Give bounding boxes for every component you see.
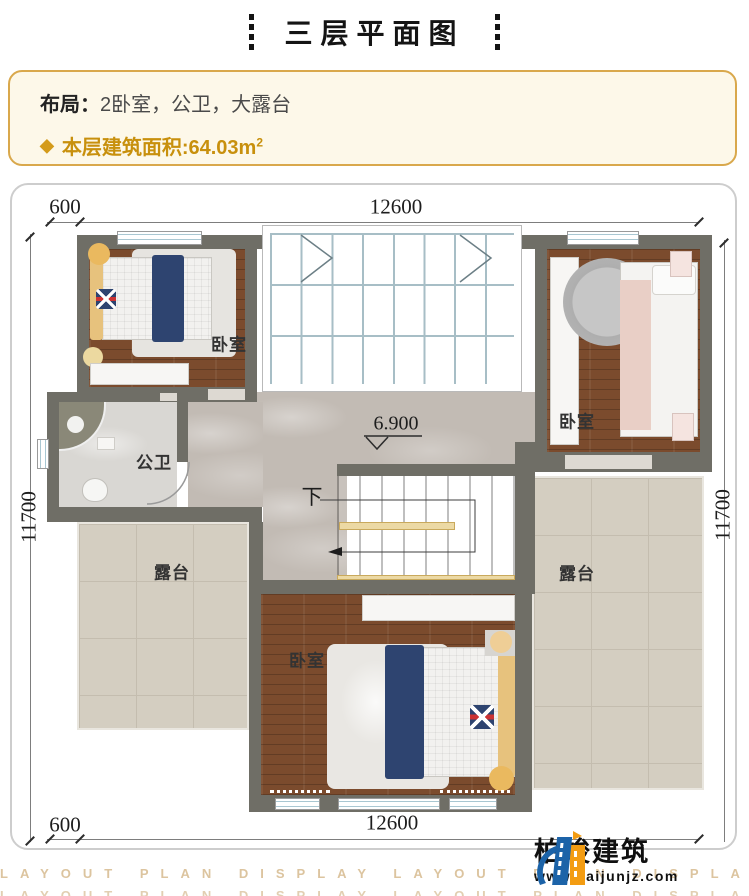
wall xyxy=(77,235,89,402)
bed-headboard xyxy=(498,647,515,777)
info-box: 布局：2卧室，公卫，大露台 ◆ 本层建筑面积:64.03m2 xyxy=(8,70,737,166)
round-stool xyxy=(88,243,110,265)
stair-edge xyxy=(337,575,515,580)
curtain xyxy=(270,790,330,793)
doorway xyxy=(208,389,245,400)
wardrobe xyxy=(362,595,515,621)
diamond-icon: ◆ xyxy=(40,135,54,156)
window xyxy=(567,231,639,245)
title-row: 三层平面图 xyxy=(0,12,749,52)
wall xyxy=(515,594,532,812)
sink xyxy=(67,416,84,433)
union-jack-pillow xyxy=(96,289,116,309)
skylight xyxy=(262,225,522,392)
skylight-open-arrows xyxy=(270,233,516,386)
window xyxy=(117,231,202,245)
dim-right: 11700 xyxy=(711,489,736,541)
union-jack-pillow xyxy=(470,705,494,729)
bed-runner xyxy=(385,645,424,779)
room-label-bedroom-bottom: 卧室 xyxy=(289,647,325,672)
logo-building-icon xyxy=(534,829,592,893)
curtain xyxy=(440,790,510,793)
wall xyxy=(249,594,261,812)
dim-line-right xyxy=(724,240,725,842)
elevation-label: 6.900 xyxy=(374,413,419,436)
room-label-bedroom-top-right: 卧室 xyxy=(559,408,595,433)
elevation-marker xyxy=(362,435,442,451)
dim-line-top xyxy=(47,222,699,223)
floor-plan: 600 12600 11700 11700 600 12600 xyxy=(10,183,737,850)
toilet xyxy=(82,478,108,502)
dim-left: 11700 xyxy=(17,491,42,543)
nightstand xyxy=(672,413,694,441)
bathroom-vestibule-floor xyxy=(188,402,263,507)
layout-label: 布局： xyxy=(40,94,100,116)
round-stool xyxy=(489,766,514,791)
brand-logo: 柏竣建筑 www.baijunjz.com xyxy=(534,826,746,896)
sliding-door xyxy=(565,455,652,469)
nightstand xyxy=(670,251,692,277)
room-label-terrace-right: 露台 xyxy=(559,560,595,585)
layout-summary: 布局：2卧室，公卫，大露台 xyxy=(40,88,705,117)
terrace-left-floor xyxy=(77,522,249,730)
wall xyxy=(245,235,257,402)
area-summary: ◆ 本层建筑面积:64.03m2 xyxy=(40,131,705,160)
room-label-bedroom-top-left: 卧室 xyxy=(211,331,247,356)
wall xyxy=(700,235,712,472)
dim-bottom-main: 12600 xyxy=(366,811,419,836)
terrace-right-floor xyxy=(532,476,704,790)
dim-top-main: 12600 xyxy=(370,195,423,220)
area-text: 本层建筑面积:64.03m2 xyxy=(62,131,263,160)
page-title: 三层平面图 xyxy=(284,12,464,52)
title-decor-bar-right xyxy=(495,14,500,50)
wall xyxy=(249,580,535,594)
wall xyxy=(515,442,535,594)
window xyxy=(275,798,320,810)
stairs-down-label: 下 xyxy=(302,481,323,511)
room-label-terrace-left: 露台 xyxy=(154,559,190,584)
skylight-glass xyxy=(270,233,514,384)
window xyxy=(338,798,440,810)
stair-path-arrow xyxy=(332,485,492,565)
round-cushion xyxy=(490,631,512,653)
layout-value: 2卧室，公卫，大露台 xyxy=(100,94,291,116)
wall xyxy=(47,507,262,522)
title-decor-bar-left xyxy=(249,14,254,50)
dim-top-offset: 600 xyxy=(49,195,81,220)
dresser xyxy=(90,363,189,385)
window xyxy=(449,798,497,810)
wall xyxy=(535,235,547,472)
window xyxy=(37,439,49,469)
wall xyxy=(177,392,188,462)
bath-shelf xyxy=(97,437,115,450)
bed-runner xyxy=(152,255,184,342)
wall xyxy=(337,464,535,476)
bed-blanket-pink xyxy=(620,280,651,430)
room-label-bathroom: 公卫 xyxy=(136,449,172,474)
